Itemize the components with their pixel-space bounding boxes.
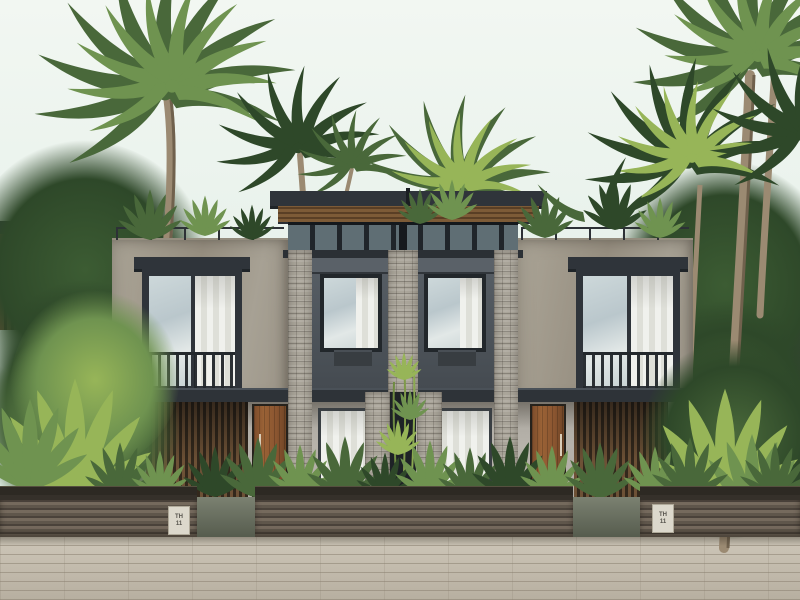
- boundary-fence: TH 11 TH 11: [0, 0, 800, 600]
- architectural-rendering: TH 11 TH 11: [0, 0, 800, 600]
- fence-ground-shadow: [0, 537, 800, 546]
- plaque-line2: 11: [653, 519, 673, 526]
- unit-plaque-right: TH 11: [652, 504, 674, 533]
- fence-segment-center: [255, 495, 573, 537]
- entry-walkway-left: [197, 497, 255, 537]
- plaque-line2: 11: [169, 521, 189, 528]
- unit-plaque-left: TH 11: [168, 506, 190, 535]
- entry-walkway-right: [573, 497, 640, 537]
